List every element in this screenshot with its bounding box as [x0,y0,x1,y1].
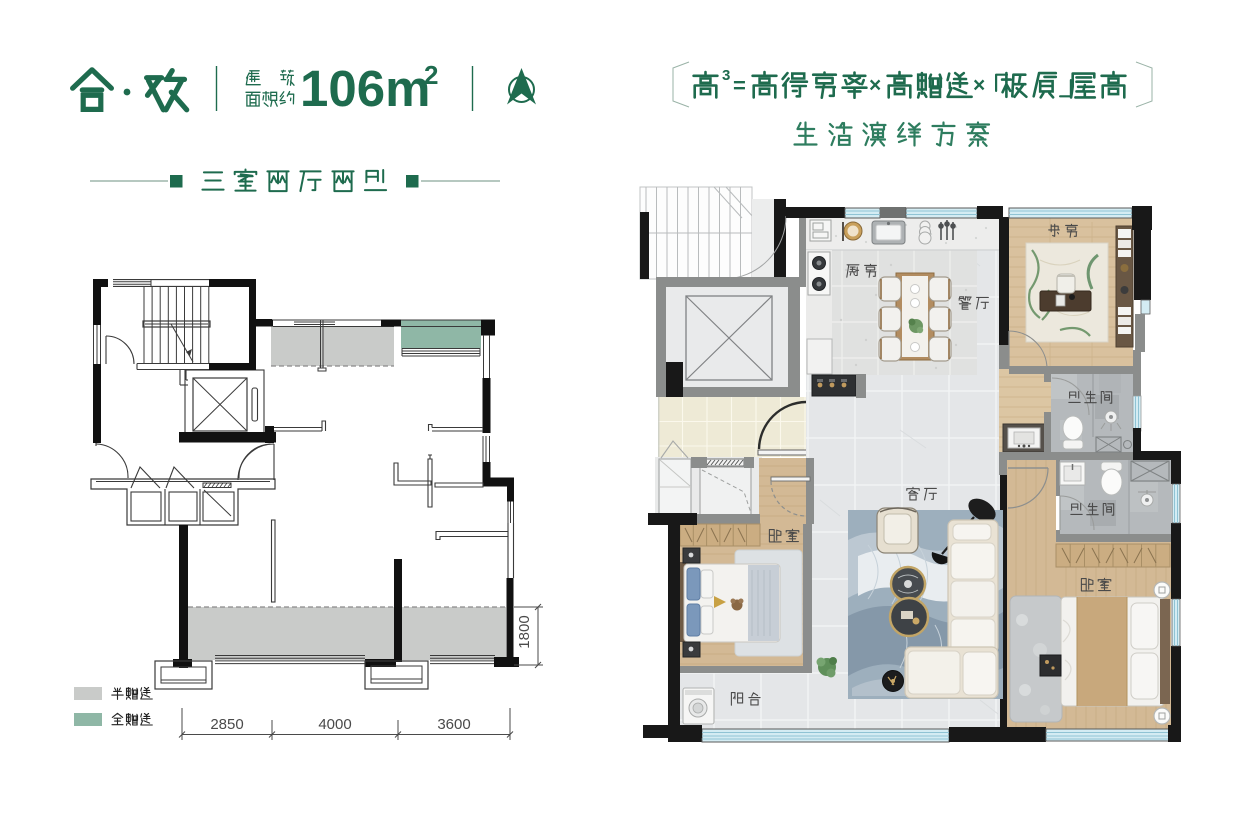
svg-text:=: = [733,73,746,98]
svg-text:4000: 4000 [318,716,351,733]
svg-text:×: × [973,74,985,97]
svg-text:2850: 2850 [210,716,243,733]
svg-text:×: × [869,74,881,97]
svg-text:3600: 3600 [437,716,470,733]
svg-text:1800: 1800 [516,615,533,648]
svg-text:106m: 106m [300,60,430,117]
svg-text:3: 3 [722,67,730,84]
svg-text:2: 2 [424,60,438,90]
